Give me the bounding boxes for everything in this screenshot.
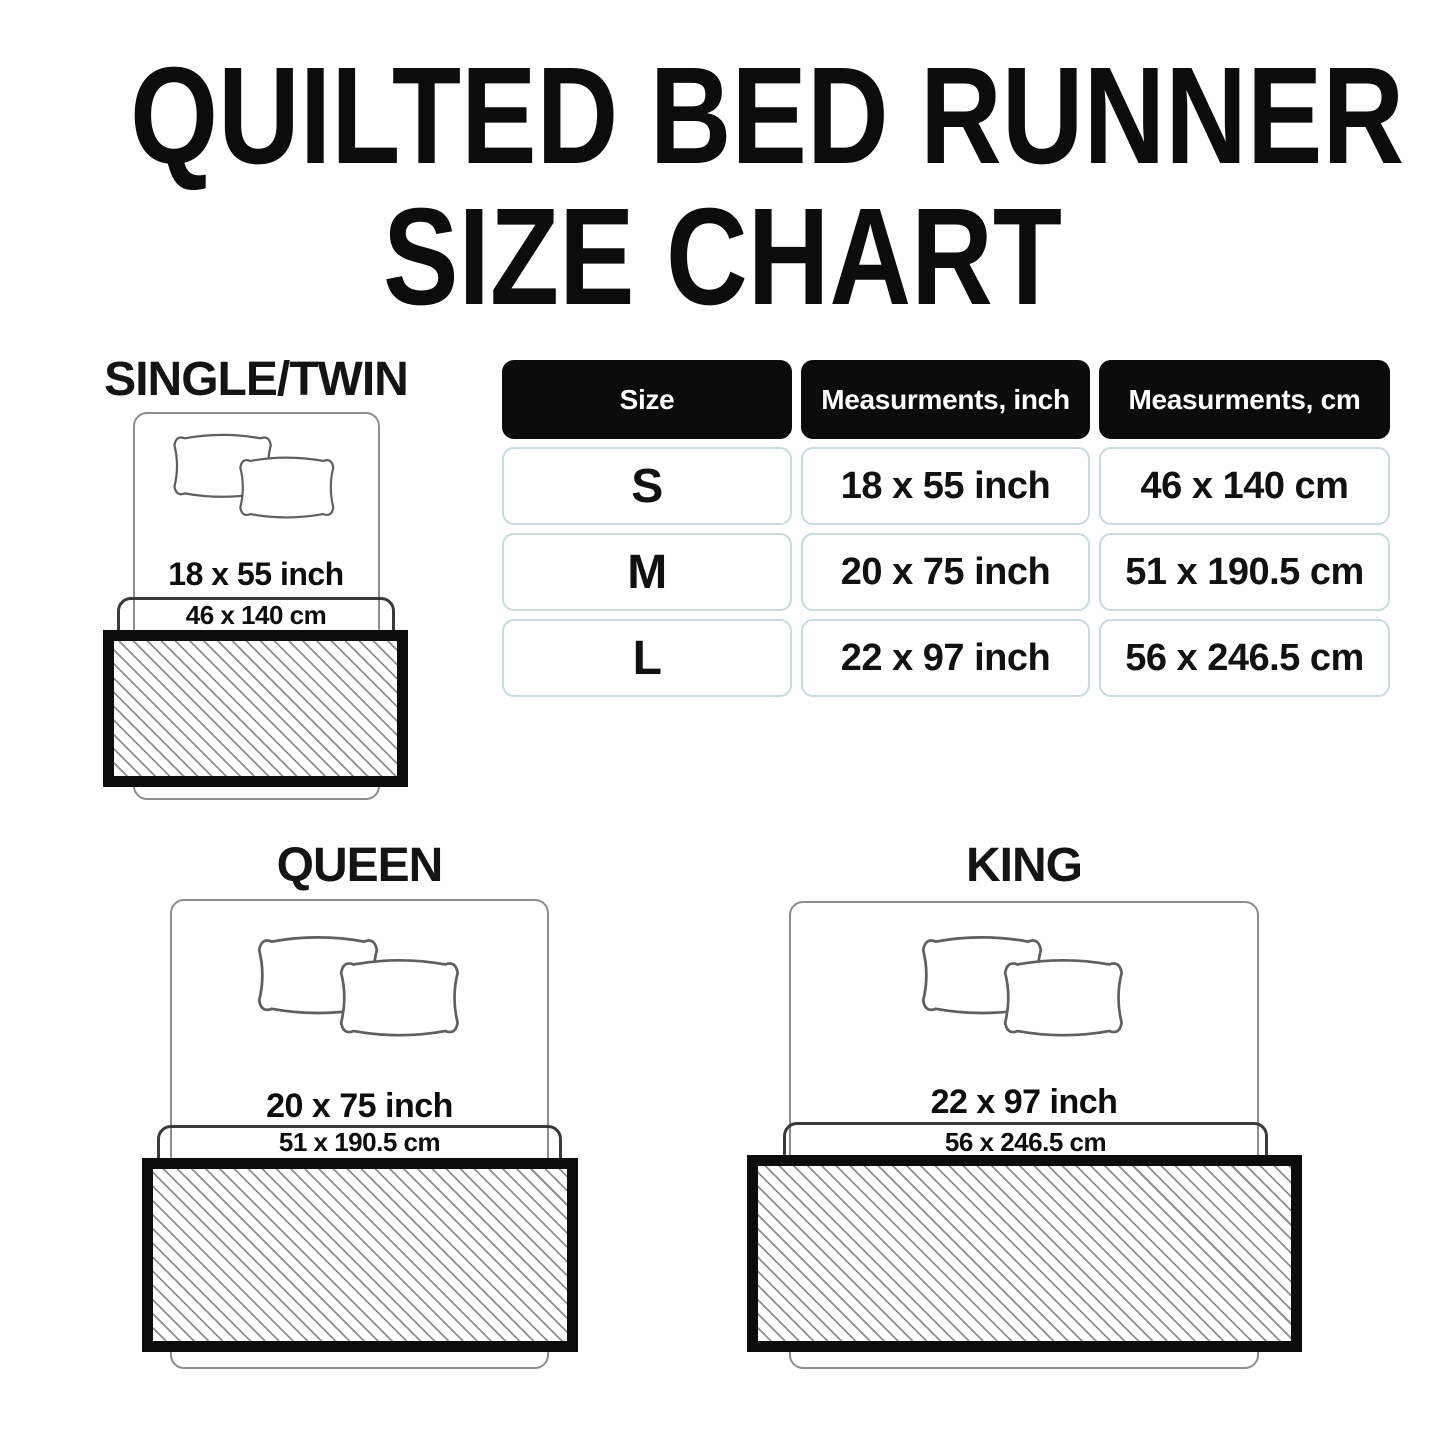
page-title-line-2: SIZE CHART	[130, 187, 1315, 328]
size-table-header-size: Size	[502, 360, 792, 439]
bed-runner-hatch-swatch	[747, 1155, 1302, 1352]
size-table: Size Measurments, inch Measurments, cm S…	[502, 360, 1390, 697]
diagram-king-label: KING	[789, 838, 1259, 893]
size-table-cell-m-size: M	[502, 533, 792, 611]
size-table-header-cm: Measurments, cm	[1099, 360, 1390, 439]
size-table-cell-m-inch: 20 x 75 inch	[801, 533, 1090, 611]
bed-runner-hatch-swatch	[103, 630, 408, 787]
size-table-cell-s-cm: 46 x 140 cm	[1099, 447, 1390, 525]
size-chart-infographic: QUILTED BED RUNNER SIZE CHART Size Measu…	[0, 0, 1445, 1445]
pillows-illustration	[912, 918, 1137, 1050]
runner-size-cm-label: 56 x 246.5 cm	[783, 1129, 1268, 1155]
pillow-icon	[240, 458, 333, 518]
runner-size-inch-label: 22 x 97 inch	[789, 1084, 1259, 1120]
diagram-single-twin-label: SINGLE/TWIN	[84, 352, 428, 407]
size-table-cell-l-cm: 56 x 246.5 cm	[1099, 619, 1390, 697]
bed-runner-hatch-swatch	[142, 1158, 578, 1352]
size-table-cell-l-inch: 22 x 97 inch	[801, 619, 1090, 697]
size-table-header-inch: Measurments, inch	[801, 360, 1090, 439]
diagram-queen-label: QUEEN	[170, 838, 549, 893]
pillow-icon	[1005, 960, 1121, 1035]
pillows-illustration	[248, 918, 473, 1050]
size-table-cell-m-cm: 51 x 190.5 cm	[1099, 533, 1390, 611]
size-table-cell-s-size: S	[502, 447, 792, 525]
page-title-line-1: QUILTED BED RUNNER	[130, 46, 1315, 187]
runner-size-cm-label: 46 x 140 cm	[117, 602, 395, 628]
page-title: QUILTED BED RUNNER SIZE CHART	[130, 46, 1315, 328]
runner-size-cm-label: 51 x 190.5 cm	[157, 1129, 562, 1155]
size-table-cell-l-size: L	[502, 619, 792, 697]
pillows-illustration	[160, 418, 350, 530]
runner-size-inch-label: 18 x 55 inch	[106, 556, 406, 592]
runner-size-inch-label: 20 x 75 inch	[170, 1088, 549, 1124]
size-table-cell-s-inch: 18 x 55 inch	[801, 447, 1090, 525]
pillow-icon	[341, 960, 457, 1035]
